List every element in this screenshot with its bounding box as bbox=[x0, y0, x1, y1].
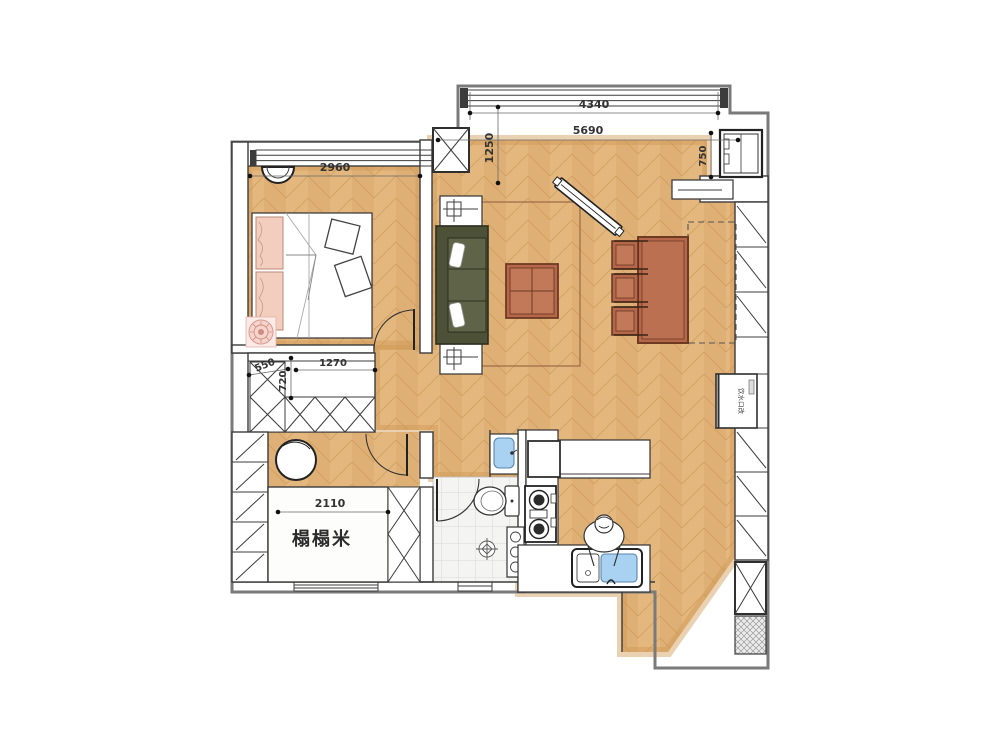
tatami-window bbox=[294, 582, 378, 591]
svg-text:720: 720 bbox=[278, 371, 289, 392]
svg-text:1270: 1270 bbox=[319, 358, 347, 369]
fridge bbox=[720, 130, 762, 177]
floor-plan-drawing: 饮水口改 bbox=[0, 0, 1000, 750]
pillow bbox=[256, 217, 283, 269]
kitchen-sink bbox=[572, 549, 642, 587]
svg-text:1250: 1250 bbox=[483, 132, 496, 163]
stove bbox=[525, 486, 556, 542]
svg-text:5690: 5690 bbox=[573, 124, 604, 137]
round-rug-mandala bbox=[246, 317, 276, 347]
svg-text:2110: 2110 bbox=[315, 497, 346, 510]
entry-bench bbox=[672, 180, 733, 199]
round-stool bbox=[276, 440, 316, 480]
bathroom-window bbox=[458, 582, 492, 591]
washbasin bbox=[490, 434, 518, 474]
floor-plan-page: { "labels": { "tatami_room": "榻榻米", "wat… bbox=[0, 0, 1000, 750]
water-dispenser-unit: 饮水口改 bbox=[716, 374, 757, 428]
svg-text:750: 750 bbox=[698, 146, 709, 167]
water-note-label: 饮水口改 bbox=[737, 388, 746, 415]
sofa bbox=[436, 226, 488, 344]
tatami-label: 榻榻米 bbox=[292, 528, 352, 550]
kitchen-appliance bbox=[528, 441, 560, 477]
svg-text:4340: 4340 bbox=[579, 98, 610, 111]
svg-text:2960: 2960 bbox=[320, 161, 351, 174]
kitchen-peninsula bbox=[558, 440, 650, 478]
column-top bbox=[433, 128, 469, 172]
tatami-wardrobe bbox=[388, 487, 420, 582]
column-bottom-right bbox=[735, 562, 766, 614]
side-closet bbox=[232, 432, 268, 582]
side-table-bottom bbox=[440, 344, 482, 374]
cushion bbox=[325, 219, 360, 254]
side-table-top bbox=[440, 196, 482, 226]
coffee-table bbox=[506, 264, 558, 318]
shaft-hatched bbox=[735, 616, 766, 654]
toilet bbox=[474, 486, 519, 516]
